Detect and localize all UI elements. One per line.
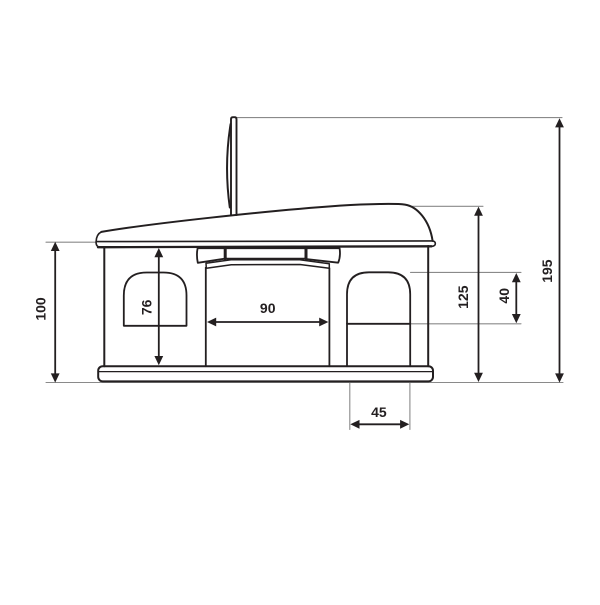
svg-text:40: 40 bbox=[496, 288, 512, 304]
svg-text:76: 76 bbox=[139, 299, 155, 315]
svg-text:125: 125 bbox=[455, 285, 471, 309]
svg-text:195: 195 bbox=[539, 259, 555, 283]
svg-text:45: 45 bbox=[371, 404, 387, 420]
svg-text:100: 100 bbox=[33, 297, 49, 321]
svg-text:90: 90 bbox=[260, 300, 276, 316]
